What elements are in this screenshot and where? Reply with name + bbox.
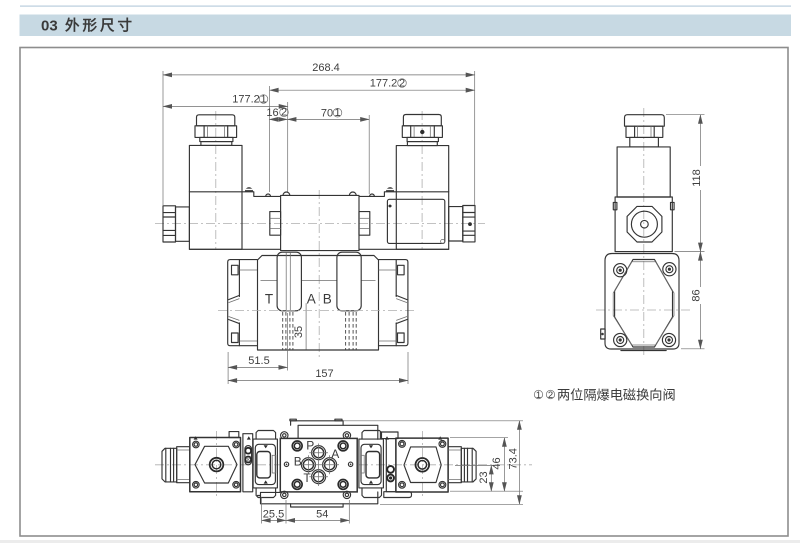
svg-text:1: 1 <box>334 107 340 119</box>
svg-text:2: 2 <box>548 390 553 401</box>
svg-text:两位隔爆电磁换向阀: 两位隔爆电磁换向阀 <box>557 388 676 403</box>
svg-text:70: 70 <box>321 107 333 119</box>
svg-text:86: 86 <box>691 289 703 301</box>
svg-text:54: 54 <box>316 508 328 520</box>
svg-text:25.5: 25.5 <box>263 508 284 520</box>
svg-text:2: 2 <box>281 107 287 119</box>
svg-text:46: 46 <box>491 457 503 469</box>
svg-text:P: P <box>306 438 314 452</box>
svg-text:23: 23 <box>478 471 490 483</box>
svg-text:177.2: 177.2 <box>370 78 398 90</box>
svg-text:T: T <box>303 471 311 485</box>
svg-text:157: 157 <box>315 368 333 380</box>
svg-text:51.5: 51.5 <box>248 355 269 367</box>
svg-text:177.2: 177.2 <box>232 94 260 106</box>
svg-text:B: B <box>294 454 302 468</box>
svg-text:35: 35 <box>293 326 305 338</box>
svg-text:外形尺寸: 外形尺寸 <box>65 17 135 35</box>
svg-text:A: A <box>307 292 316 307</box>
svg-text:268.4: 268.4 <box>312 62 340 74</box>
svg-text:73.4: 73.4 <box>507 448 519 469</box>
svg-text:03: 03 <box>41 18 58 35</box>
svg-text:16: 16 <box>266 107 278 119</box>
svg-text:T: T <box>265 292 273 307</box>
svg-text:118: 118 <box>691 169 703 187</box>
svg-text:1: 1 <box>260 93 266 105</box>
svg-text:B: B <box>323 292 332 307</box>
svg-text:2: 2 <box>399 77 405 89</box>
svg-text:A: A <box>331 447 339 461</box>
svg-text:1: 1 <box>536 390 541 401</box>
